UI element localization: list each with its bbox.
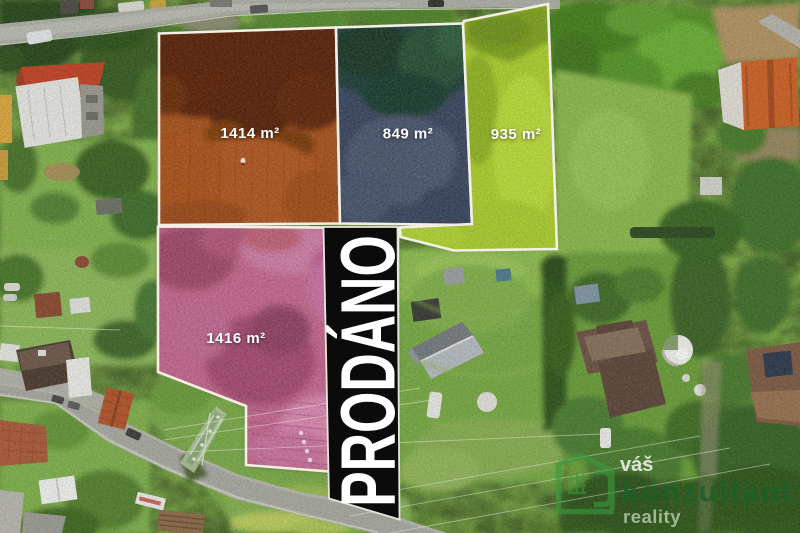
- svg-text:849 m²: 849 m²: [383, 126, 434, 143]
- svg-text:reality: reality: [623, 506, 681, 527]
- svg-text:PRODÁNO: PRODÁNO: [325, 235, 412, 507]
- svg-text:váš: váš: [620, 454, 653, 476]
- svg-text:1416 m²: 1416 m²: [206, 330, 265, 347]
- svg-text:konzultant: konzultant: [622, 476, 794, 509]
- svg-text:1414 m²: 1414 m²: [220, 125, 279, 142]
- svg-text:935 m²: 935 m²: [491, 126, 542, 143]
